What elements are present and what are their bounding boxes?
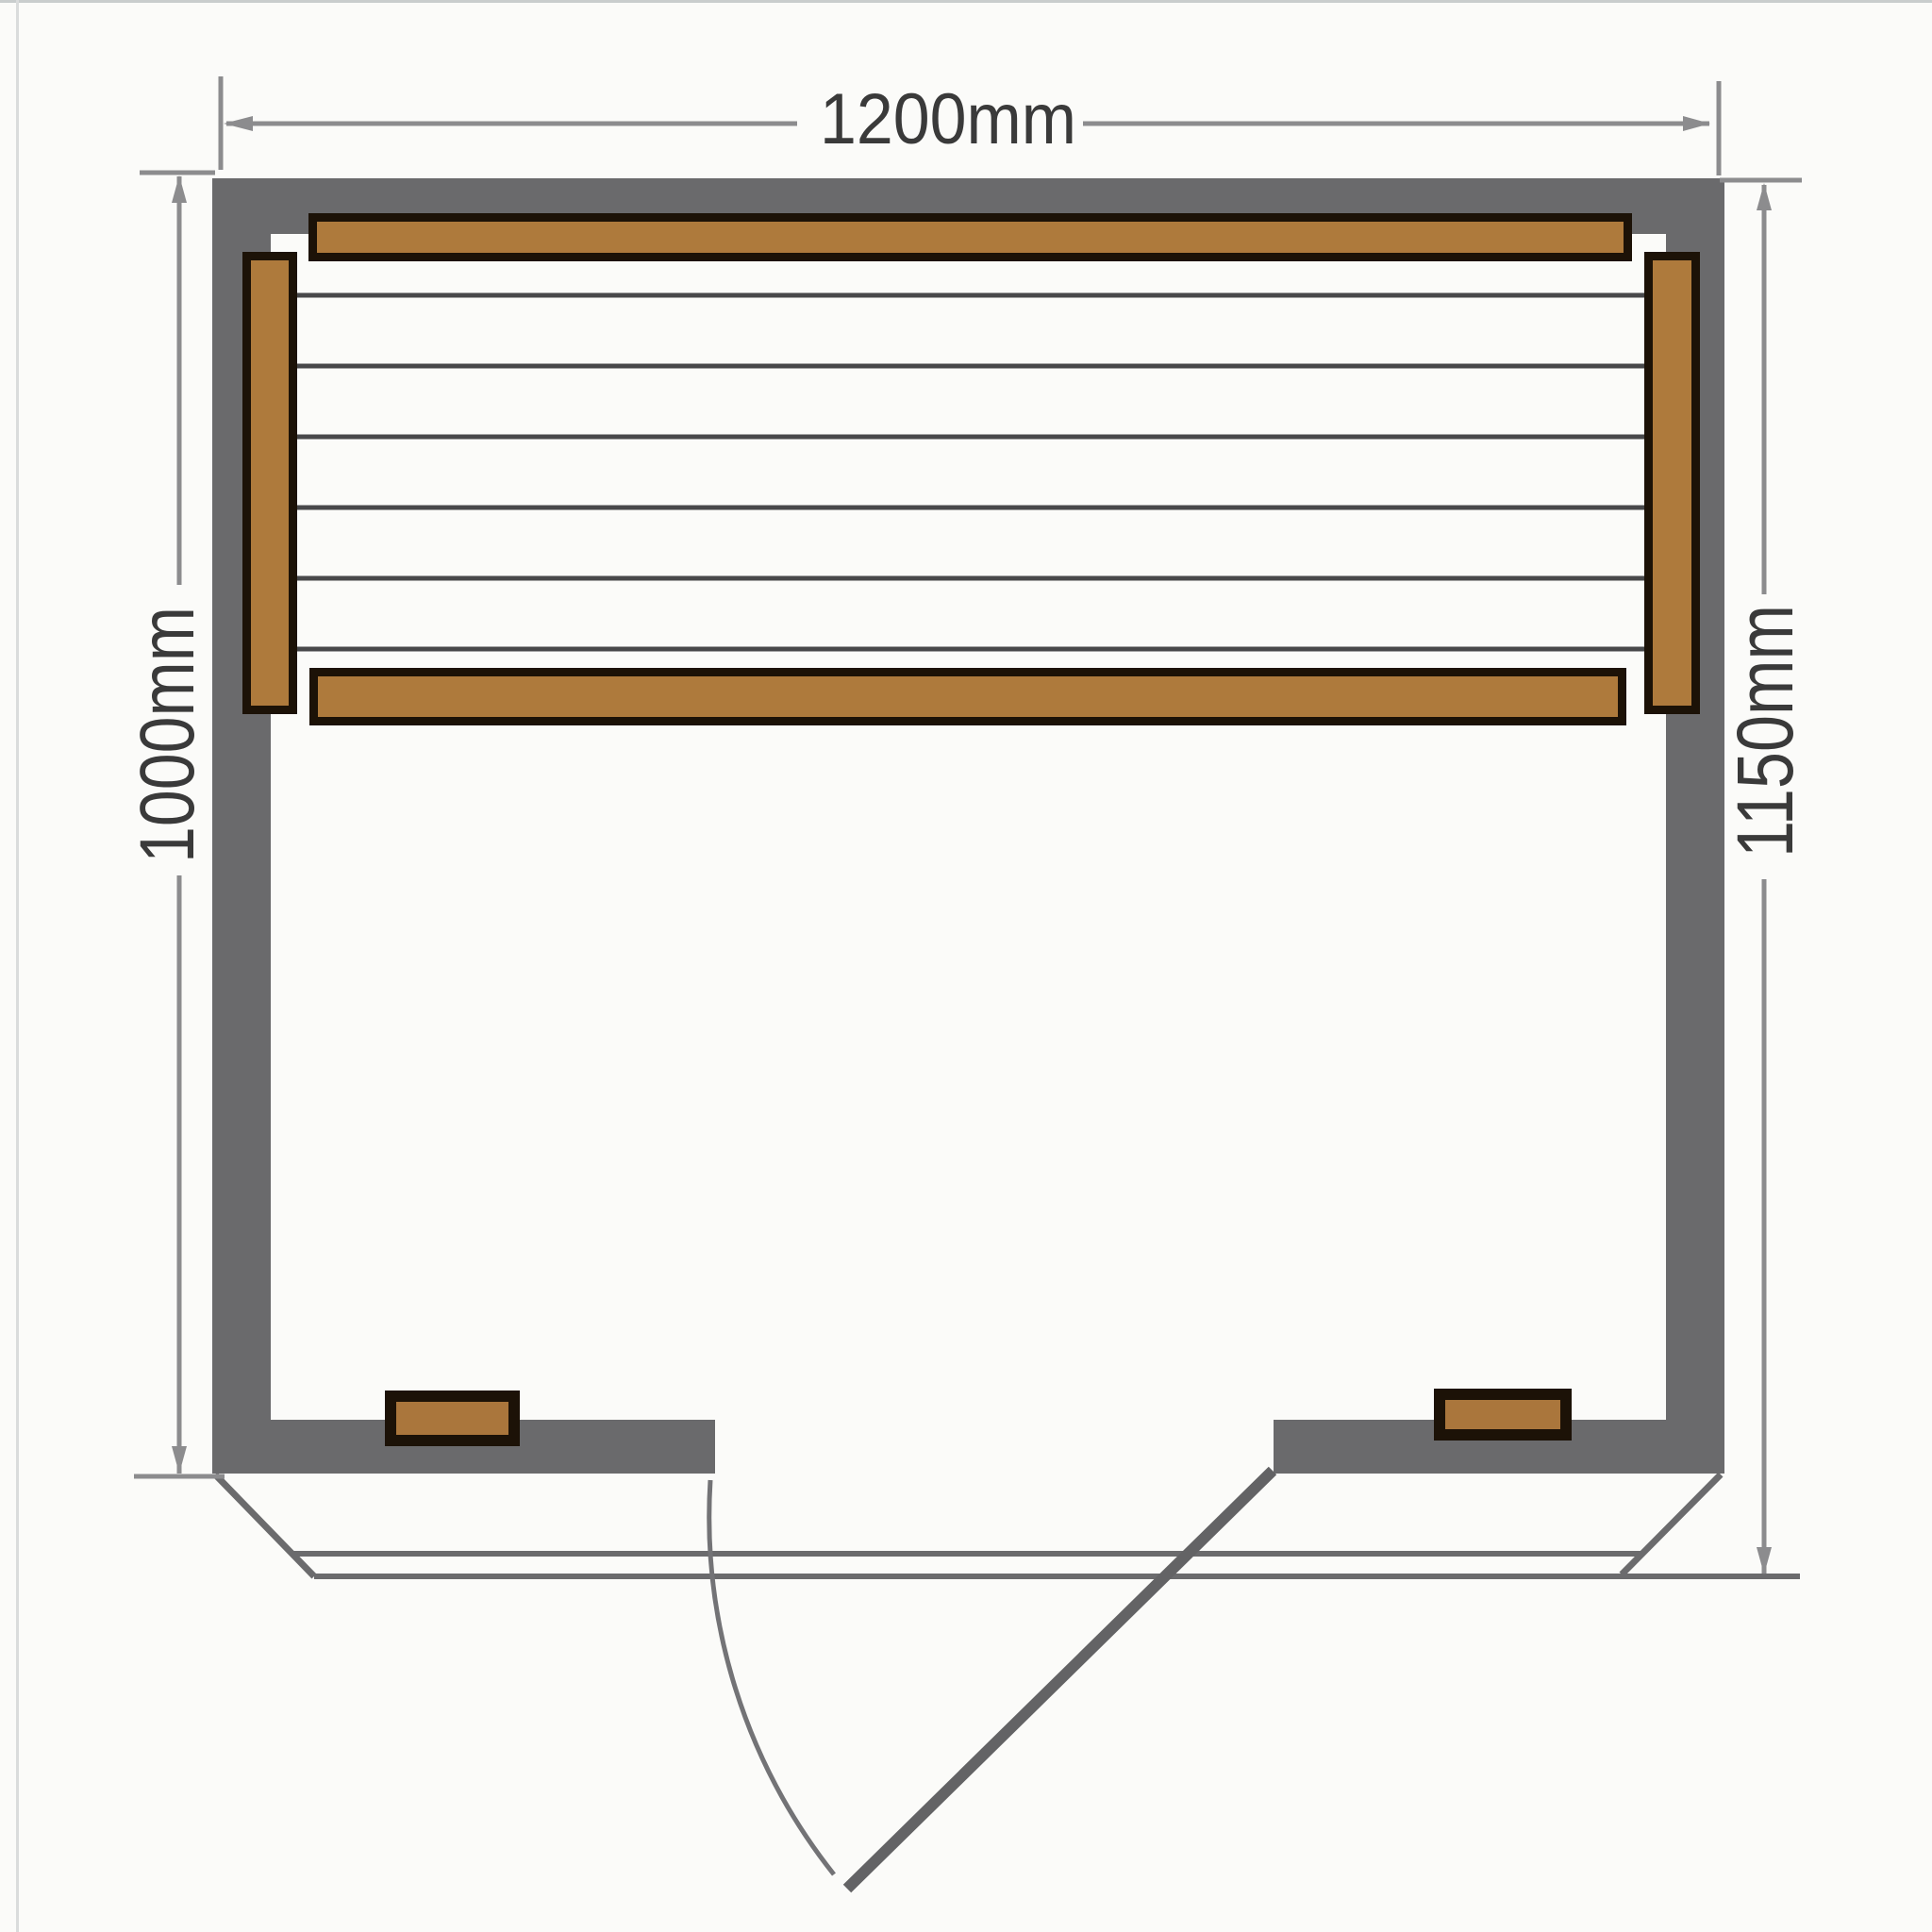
svg-text:1200mm: 1200mm: [820, 79, 1076, 159]
svg-text:1000mm: 1000mm: [125, 607, 210, 863]
svg-text:1150mm: 1150mm: [1721, 605, 1809, 858]
